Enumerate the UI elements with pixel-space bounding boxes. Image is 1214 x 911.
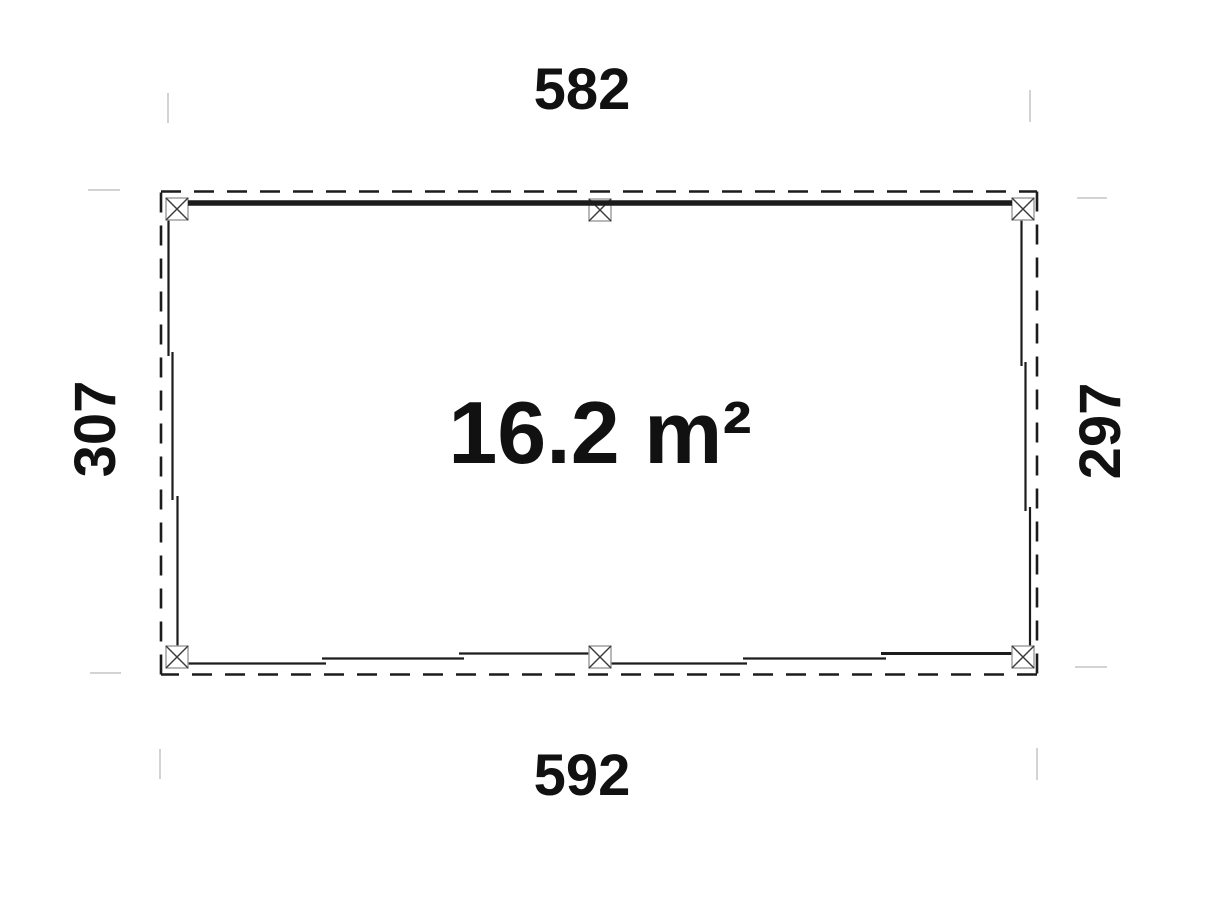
corner-post-top-right [1012, 198, 1034, 220]
dimension-label-top: 582 [534, 61, 631, 119]
plan-canvas: 582 592 307 297 16.2 m² [0, 0, 1214, 911]
corner-post-top-left [166, 198, 188, 220]
corner-post-bottom-right [1012, 646, 1034, 668]
dimension-label-right: 297 [1072, 383, 1130, 480]
area-label: 16.2 m² [448, 389, 751, 477]
corner-post-bottom-left [166, 646, 188, 668]
mid-post-bottom [589, 646, 611, 668]
dimension-label-bottom: 592 [534, 747, 631, 805]
right-wall [1022, 220, 1031, 647]
dimension-label-left: 307 [67, 381, 125, 478]
left-wall [169, 220, 178, 647]
